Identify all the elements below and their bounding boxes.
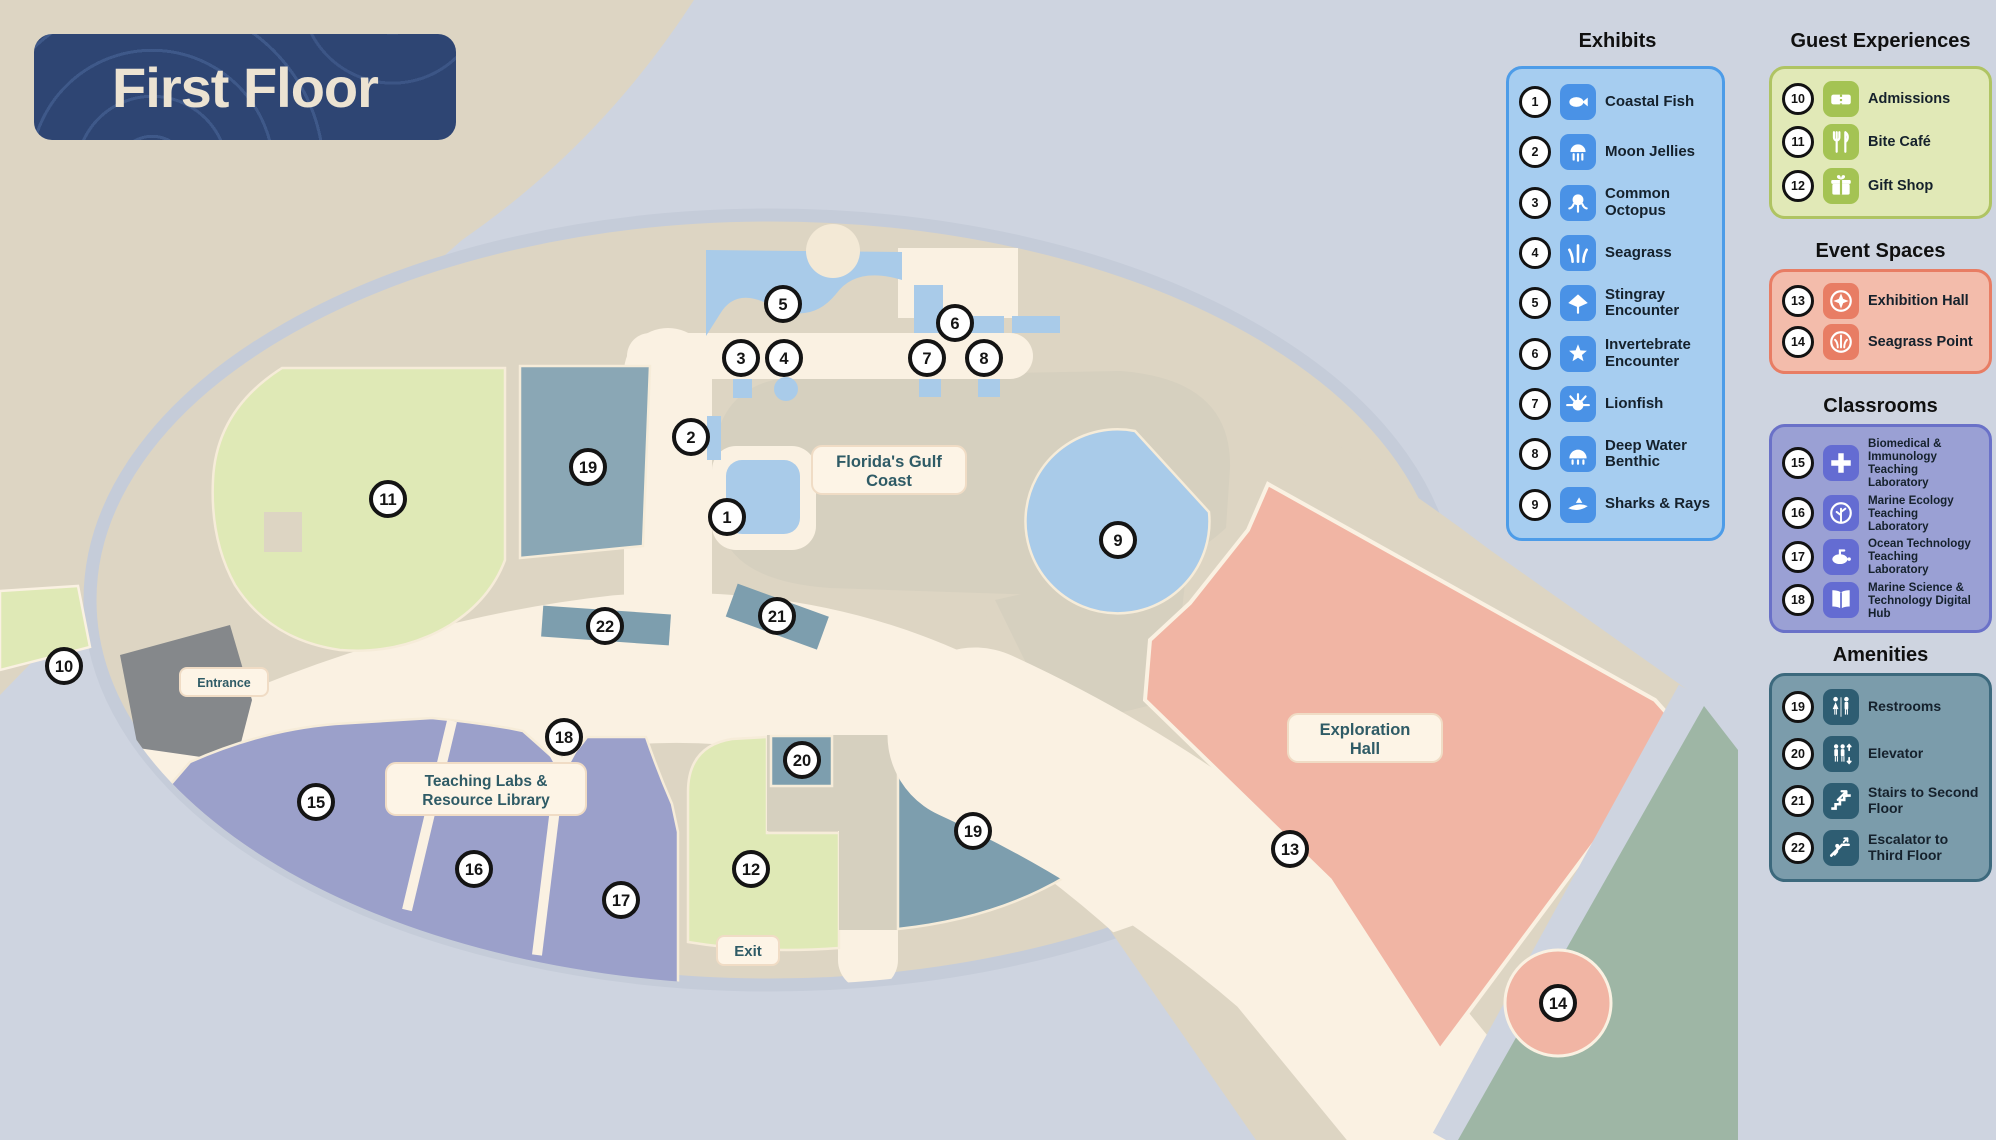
cafe-icon bbox=[1823, 124, 1859, 160]
legend-marker-14: 14 bbox=[1782, 326, 1814, 358]
cafe-notch bbox=[264, 512, 302, 552]
map-marker-9[interactable]: 9 bbox=[1101, 523, 1135, 557]
svg-text:Resource Library: Resource Library bbox=[422, 792, 550, 809]
svg-text:2: 2 bbox=[686, 429, 695, 447]
legend-title-event: Event Spaces bbox=[1769, 240, 1992, 263]
map-marker-21[interactable]: 21 bbox=[760, 599, 794, 633]
svg-text:Florida's Gulf: Florida's Gulf bbox=[836, 453, 942, 471]
legend-panel-exhibits: 1Coastal Fish2Moon Jellies3Common Octopu… bbox=[1506, 66, 1725, 541]
legend-marker-7: 7 bbox=[1519, 388, 1551, 420]
svg-text:Exit: Exit bbox=[734, 943, 762, 960]
legend-label: Elevator bbox=[1868, 746, 1923, 762]
starfish-icon bbox=[1560, 336, 1596, 372]
legend-label: Ocean Technology Teaching Laboratory bbox=[1868, 537, 1979, 576]
octopus-tank bbox=[733, 379, 752, 398]
legend-marker-21: 21 bbox=[1782, 785, 1814, 817]
octopus-icon bbox=[1560, 185, 1596, 221]
legend-label: Seagrass bbox=[1605, 245, 1672, 262]
label-exit: Exit bbox=[717, 936, 779, 965]
legend-marker-2: 2 bbox=[1519, 136, 1551, 168]
legend-title-amenities: Amenities bbox=[1769, 644, 1992, 667]
bite-cafe-area bbox=[213, 368, 505, 651]
legend-panel-classrooms: 15Biomedical & Immunology Teaching Labor… bbox=[1769, 424, 1992, 633]
seagrass-icon bbox=[1560, 235, 1596, 271]
map-marker-15[interactable]: 15 bbox=[299, 785, 333, 819]
stingray-tank-notch bbox=[806, 224, 860, 278]
legend-marker-16: 16 bbox=[1782, 497, 1814, 529]
ocean-tech-icon bbox=[1823, 539, 1859, 575]
legend-label: Lionfish bbox=[1605, 396, 1663, 413]
svg-text:7: 7 bbox=[922, 350, 931, 368]
legend-marker-9: 9 bbox=[1519, 489, 1551, 521]
svg-text:19: 19 bbox=[579, 459, 597, 477]
svg-text:9: 9 bbox=[1113, 532, 1122, 550]
svg-text:Entrance: Entrance bbox=[197, 676, 251, 690]
legend-label: Stingray Encounter bbox=[1605, 287, 1712, 321]
label-teaching-labs: Teaching Labs & Resource Library bbox=[386, 763, 586, 815]
svg-text:Hall: Hall bbox=[1350, 740, 1380, 758]
map-marker-16[interactable]: 16 bbox=[457, 852, 491, 886]
legend-item-3[interactable]: 3Common Octopus bbox=[1519, 185, 1712, 221]
legend-marker-22: 22 bbox=[1782, 832, 1814, 864]
svg-text:17: 17 bbox=[612, 892, 630, 910]
map-marker-8[interactable]: 8 bbox=[967, 341, 1001, 375]
legend-panel-guest: 10Admissions11Bite Café12Gift Shop bbox=[1769, 66, 1992, 219]
legend-label: Gift Shop bbox=[1868, 178, 1933, 194]
legend-marker-13: 13 bbox=[1782, 285, 1814, 317]
svg-text:18: 18 bbox=[555, 729, 573, 747]
svg-text:22: 22 bbox=[596, 618, 614, 636]
legend-item-11[interactable]: 11Bite Café bbox=[1782, 124, 1979, 160]
svg-text:12: 12 bbox=[742, 861, 760, 879]
stairs-icon bbox=[1823, 783, 1859, 819]
legend-label: Common Octopus bbox=[1605, 186, 1712, 220]
legend-item-2[interactable]: 2Moon Jellies bbox=[1519, 134, 1712, 170]
legend-marker-20: 20 bbox=[1782, 738, 1814, 770]
legend-item-15[interactable]: 15Biomedical & Immunology Teaching Labor… bbox=[1782, 437, 1979, 489]
legend-marker-4: 4 bbox=[1519, 237, 1551, 269]
legend-item-14[interactable]: 14Seagrass Point bbox=[1782, 324, 1979, 360]
lionfish-tank bbox=[919, 379, 941, 397]
legend-item-6[interactable]: 6Invertebrate Encounter bbox=[1519, 336, 1712, 372]
map-marker-11[interactable]: 11 bbox=[371, 482, 405, 516]
legend-item-13[interactable]: 13Exhibition Hall bbox=[1782, 283, 1979, 319]
legend-label: Escalator to Third Floor bbox=[1868, 832, 1979, 864]
map-marker-4[interactable]: 4 bbox=[767, 341, 801, 375]
map-marker-19[interactable]: 19 bbox=[956, 814, 990, 848]
svg-text:14: 14 bbox=[1549, 995, 1568, 1013]
svg-text:10: 10 bbox=[55, 658, 73, 676]
legend-label: Seagrass Point bbox=[1868, 334, 1973, 350]
legend-label: Exhibition Hall bbox=[1868, 293, 1969, 309]
svg-text:4: 4 bbox=[779, 350, 789, 368]
legend-label: Biomedical & Immunology Teaching Laborat… bbox=[1868, 437, 1979, 489]
fish-icon bbox=[1560, 84, 1596, 120]
svg-text:Coast: Coast bbox=[866, 472, 912, 490]
legend-title-classrooms: Classrooms bbox=[1769, 395, 1992, 418]
legend-marker-12: 12 bbox=[1782, 170, 1814, 202]
legend-marker-5: 5 bbox=[1519, 287, 1551, 319]
map-marker-6[interactable]: 6 bbox=[938, 306, 972, 340]
svg-text:13: 13 bbox=[1281, 841, 1299, 859]
ticket-icon bbox=[1823, 81, 1859, 117]
legend-item-7[interactable]: 7Lionfish bbox=[1519, 386, 1712, 422]
svg-text:16: 16 bbox=[465, 861, 483, 879]
legend-marker-18: 18 bbox=[1782, 584, 1814, 616]
legend-label: Bite Café bbox=[1868, 134, 1931, 150]
label-florida-gulf-coast: Florida's Gulf Coast bbox=[812, 446, 966, 494]
map-marker-7[interactable]: 7 bbox=[910, 341, 944, 375]
svg-text:15: 15 bbox=[307, 794, 325, 812]
legend-marker-15: 15 bbox=[1782, 447, 1814, 479]
label-exploration-hall: Exploration Hall bbox=[1288, 714, 1442, 762]
map-marker-10[interactable]: 10 bbox=[47, 649, 81, 683]
legend-title-exhibits: Exhibits bbox=[1506, 30, 1729, 53]
book-icon bbox=[1823, 582, 1859, 618]
gift-icon bbox=[1823, 168, 1859, 204]
ecology-icon bbox=[1823, 495, 1859, 531]
legend-item-8[interactable]: 8Deep Water Benthic bbox=[1519, 436, 1712, 472]
map-marker-19[interactable]: 19 bbox=[571, 450, 605, 484]
legend-item-19[interactable]: 19Restrooms bbox=[1782, 689, 1979, 725]
legend-label: Marine Science & Technology Digital Hub bbox=[1868, 581, 1979, 620]
svg-text:3: 3 bbox=[736, 350, 745, 368]
legend-item-1[interactable]: 1Coastal Fish bbox=[1519, 84, 1712, 120]
legend-item-21[interactable]: 21Stairs to Second Floor bbox=[1782, 783, 1979, 819]
svg-text:21: 21 bbox=[768, 608, 786, 626]
svg-text:8: 8 bbox=[979, 350, 988, 368]
jellyfish-icon bbox=[1560, 134, 1596, 170]
shark-icon bbox=[1560, 487, 1596, 523]
map-marker-14[interactable]: 14 bbox=[1541, 986, 1575, 1020]
invertebrate-tank-c bbox=[1012, 316, 1060, 333]
map-marker-17[interactable]: 17 bbox=[604, 883, 638, 917]
legend-marker-1: 1 bbox=[1519, 86, 1551, 118]
legend-item-20[interactable]: 20Elevator bbox=[1782, 736, 1979, 772]
svg-text:1: 1 bbox=[722, 509, 731, 527]
legend-marker-17: 17 bbox=[1782, 541, 1814, 573]
label-entrance: Entrance bbox=[180, 668, 268, 696]
svg-text:11: 11 bbox=[379, 491, 396, 509]
svg-text:6: 6 bbox=[950, 315, 959, 333]
escalator-icon bbox=[1823, 830, 1859, 866]
legend-label: Marine Ecology Teaching Laboratory bbox=[1868, 494, 1979, 533]
legend-label: Moon Jellies bbox=[1605, 144, 1695, 161]
legend-item-17[interactable]: 17Ocean Technology Teaching Laboratory bbox=[1782, 537, 1979, 576]
legend-item-5[interactable]: 5Stingray Encounter bbox=[1519, 285, 1712, 321]
legend-panel-event: 13Exhibition Hall14Seagrass Point bbox=[1769, 269, 1992, 374]
legend-label: Stairs to Second Floor bbox=[1868, 785, 1979, 817]
map-marker-18[interactable]: 18 bbox=[547, 720, 581, 754]
legend-item-18[interactable]: 18Marine Science & Technology Digital Hu… bbox=[1782, 581, 1979, 620]
svg-text:Teaching Labs &: Teaching Labs & bbox=[425, 773, 548, 790]
map-marker-20[interactable]: 20 bbox=[785, 743, 819, 777]
svg-text:Exploration: Exploration bbox=[1320, 721, 1411, 739]
benthic-tank bbox=[978, 379, 1000, 397]
floor-title: First Floor bbox=[34, 34, 456, 140]
first-floor-map-page: Florida's Gulf Coast Exploration Hall Te… bbox=[0, 0, 1996, 1140]
benthic-icon bbox=[1560, 436, 1596, 472]
legend-item-12[interactable]: 12Gift Shop bbox=[1782, 168, 1979, 204]
legend-label: Admissions bbox=[1868, 91, 1950, 107]
legend-marker-8: 8 bbox=[1519, 438, 1551, 470]
legend-title-guest: Guest Experiences bbox=[1769, 30, 1992, 53]
legend-marker-6: 6 bbox=[1519, 338, 1551, 370]
stingray-icon bbox=[1560, 285, 1596, 321]
medical-icon bbox=[1823, 445, 1859, 481]
map-marker-5[interactable]: 5 bbox=[766, 287, 800, 321]
svg-text:5: 5 bbox=[778, 296, 787, 314]
svg-text:20: 20 bbox=[793, 752, 811, 770]
svg-text:19: 19 bbox=[964, 823, 982, 841]
floor-title-text: First Floor bbox=[112, 55, 378, 120]
map-marker-3[interactable]: 3 bbox=[724, 341, 758, 375]
map-marker-13[interactable]: 13 bbox=[1273, 832, 1307, 866]
legend-label: Restrooms bbox=[1868, 699, 1941, 715]
legend-marker-19: 19 bbox=[1782, 691, 1814, 723]
map-marker-2[interactable]: 2 bbox=[674, 420, 708, 454]
legend-item-4[interactable]: 4Seagrass bbox=[1519, 235, 1712, 271]
elevator-icon bbox=[1823, 736, 1859, 772]
legend-label: Sharks & Rays bbox=[1605, 496, 1710, 513]
legend-item-9[interactable]: 9Sharks & Rays bbox=[1519, 487, 1712, 523]
map-marker-1[interactable]: 1 bbox=[710, 500, 744, 534]
legend-label: Invertebrate Encounter bbox=[1605, 337, 1712, 371]
restroom-icon bbox=[1823, 689, 1859, 725]
seagrass-circle-icon bbox=[1823, 324, 1859, 360]
lionfish-icon bbox=[1560, 386, 1596, 422]
seagrass-tank bbox=[774, 377, 798, 401]
legend-panel-amenities: 19Restrooms20Elevator21Stairs to Second … bbox=[1769, 673, 1992, 882]
legend-item-16[interactable]: 16Marine Ecology Teaching Laboratory bbox=[1782, 494, 1979, 533]
legend-label: Deep Water Benthic bbox=[1605, 438, 1712, 472]
legend-item-10[interactable]: 10Admissions bbox=[1782, 81, 1979, 117]
compass-icon bbox=[1823, 283, 1859, 319]
legend-marker-11: 11 bbox=[1782, 126, 1814, 158]
legend-marker-3: 3 bbox=[1519, 187, 1551, 219]
map-marker-22[interactable]: 22 bbox=[588, 609, 622, 643]
map-marker-12[interactable]: 12 bbox=[734, 852, 768, 886]
legend-label: Coastal Fish bbox=[1605, 94, 1694, 111]
legend-marker-10: 10 bbox=[1782, 83, 1814, 115]
legend-item-22[interactable]: 22Escalator to Third Floor bbox=[1782, 830, 1979, 866]
